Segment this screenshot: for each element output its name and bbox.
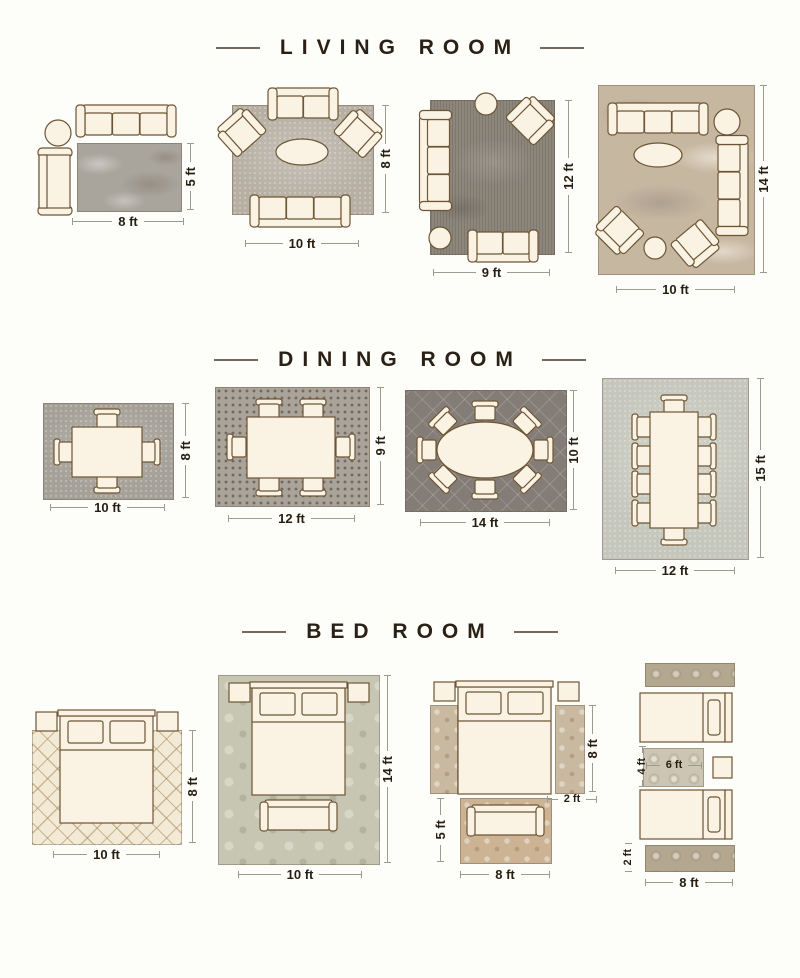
dining-chair (534, 437, 553, 463)
furniture-canvas (590, 70, 775, 305)
round-side-table (714, 109, 740, 135)
round-side-table (429, 227, 451, 249)
layout-living-9x12: 9 ft 12 ft (405, 85, 580, 290)
runner-length-dimension: 8 ft (645, 875, 733, 890)
twin-bed (640, 693, 732, 742)
dining-chair (697, 443, 716, 469)
height-dimension: 15 ft (753, 378, 768, 558)
bench (260, 800, 337, 831)
dining-chair (697, 414, 716, 440)
dining-chair (632, 414, 651, 440)
width-dimension: 10 ft (53, 847, 160, 862)
foot-rug-height-dimension: 5 ft (433, 798, 448, 862)
furniture-canvas (405, 85, 580, 290)
dining-table (72, 427, 142, 477)
height-dimension: 14 ft (756, 85, 771, 273)
armchair (592, 205, 645, 258)
dining-chair (472, 401, 498, 420)
furniture-canvas (425, 675, 610, 885)
layout-bed-10x8: 10 ft 8 ft (25, 700, 205, 865)
oval-coffee-table (276, 139, 328, 165)
width-dimension: 14 ft (420, 515, 550, 530)
width-dimension: 12 ft (615, 563, 735, 578)
furniture-canvas (205, 385, 390, 530)
furniture-canvas (215, 85, 400, 260)
layout-dining-12x15: 12 ft 15 ft (595, 375, 780, 585)
layout-bed-twin-runners: 4 ft 6 ft 2 ft 8 ft (620, 655, 790, 895)
twin-bed (640, 790, 732, 839)
nightstand (558, 682, 579, 701)
loveseat (468, 230, 538, 262)
height-dimension: 14 ft (380, 675, 395, 863)
furniture-canvas (210, 670, 395, 880)
dining-chair (300, 477, 326, 496)
width-dimension: 10 ft (616, 282, 735, 297)
section-title-text: DINING ROOM (278, 348, 522, 372)
width-dimension: 9 ft (433, 265, 550, 280)
section-title-text: BED ROOM (306, 620, 494, 644)
armchair (670, 219, 723, 272)
dining-chair (632, 500, 651, 526)
queen-bed (58, 710, 155, 823)
dining-chair (256, 477, 282, 496)
title-dash (540, 47, 584, 49)
furniture-canvas (400, 385, 575, 535)
runner-width-dimension: 2 ft (547, 793, 597, 805)
dining-chair (417, 437, 436, 463)
layout-living-10x14: 10 ft 14 ft (590, 70, 775, 305)
nightstand (713, 757, 732, 778)
queen-bed (456, 681, 553, 794)
width-dimension: 10 ft (50, 500, 165, 515)
furniture-canvas (25, 700, 205, 865)
dining-chair (141, 439, 160, 465)
round-side-table (644, 237, 666, 259)
oval-dining-table (437, 422, 533, 478)
armchair (214, 105, 267, 158)
layout-living-8x5: 8 ft 5 ft (30, 95, 205, 245)
width-dimension: 10 ft (245, 236, 359, 251)
dining-table (650, 412, 698, 528)
dining-chair (472, 480, 498, 499)
dining-chair (697, 471, 716, 497)
center-rug-width-dimension: 6 ft (646, 759, 702, 771)
foot-rug-width-dimension: 8 ft (460, 867, 550, 882)
dining-chair (632, 443, 651, 469)
height-dimension: 8 ft (178, 403, 193, 498)
sofa (420, 111, 452, 211)
width-dimension: 8 ft (72, 214, 184, 229)
section-title-dining-room: DINING ROOM (0, 348, 800, 372)
sofa (608, 103, 708, 135)
round-side-table (45, 120, 71, 146)
layout-bed-runners: 8 ft 2 ft 5 ft 8 ft (425, 675, 610, 885)
title-dash (214, 359, 258, 361)
title-dash (242, 631, 286, 633)
dining-chair (94, 409, 120, 428)
dining-table (247, 417, 335, 478)
runner-width-dimension: 2 ft (622, 843, 634, 872)
nightstand (348, 683, 369, 702)
dining-chair (256, 399, 282, 418)
height-dimension: 5 ft (183, 143, 198, 210)
dining-chair (336, 434, 355, 460)
dining-chair (661, 526, 687, 545)
sofa (268, 88, 338, 120)
title-dash (542, 359, 586, 361)
dining-chair (300, 399, 326, 418)
queen-bed (250, 682, 347, 795)
nightstand (434, 682, 455, 701)
nightstand (36, 712, 57, 731)
layout-dining-14x10: 14 ft 10 ft (400, 385, 575, 535)
chaise (38, 148, 72, 215)
section-title-text: LIVING ROOM (280, 36, 520, 60)
height-dimension: 8 ft (185, 730, 200, 843)
dining-chair (697, 500, 716, 526)
dining-chair (661, 395, 687, 414)
height-dimension: 12 ft (561, 100, 576, 253)
title-dash (216, 47, 260, 49)
layout-dining-12x9: 12 ft 9 ft (205, 385, 390, 530)
height-dimension: 9 ft (373, 387, 388, 505)
section-title-living-room: LIVING ROOM (0, 36, 800, 60)
dining-chair (54, 439, 73, 465)
sofa (76, 105, 176, 137)
dining-chair (632, 471, 651, 497)
rug-guide-page: LIVING ROOM 8 ft 5 ft (0, 0, 800, 978)
width-dimension: 12 ft (228, 511, 355, 526)
layout-dining-10x8: 10 ft 8 ft (30, 395, 195, 520)
height-dimension: 8 ft (378, 105, 393, 213)
nightstand (157, 712, 178, 731)
layout-bed-10x14: 10 ft 14 ft (210, 670, 395, 880)
sofa (716, 136, 748, 236)
layout-living-10x8: 10 ft 8 ft (215, 85, 400, 260)
runner-length-dimension: 8 ft (585, 705, 600, 792)
round-side-table (475, 93, 497, 115)
nightstand (229, 683, 250, 702)
dining-chair (227, 434, 246, 460)
width-dimension: 10 ft (238, 867, 362, 882)
bench (467, 805, 544, 836)
section-title-bed-room: BED ROOM (0, 620, 800, 644)
title-dash (514, 631, 558, 633)
sofa (250, 195, 350, 227)
height-dimension: 10 ft (566, 390, 581, 510)
armchair (505, 93, 558, 146)
oval-coffee-table (634, 143, 682, 167)
